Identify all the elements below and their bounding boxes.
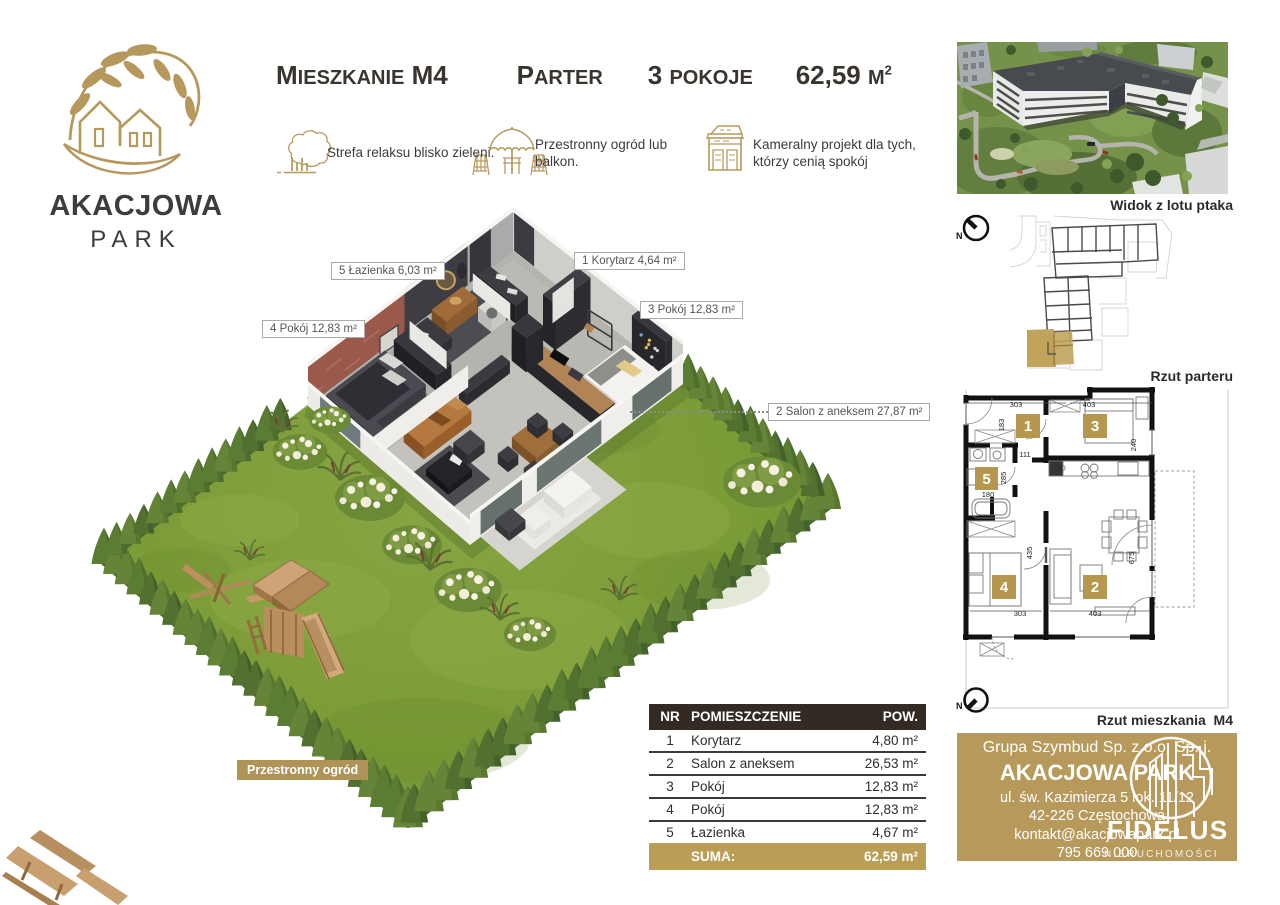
svg-text:435: 435 [1025, 547, 1034, 560]
svg-text:4: 4 [1000, 579, 1009, 596]
svg-text:303: 303 [1010, 400, 1023, 409]
svg-text:285: 285 [999, 472, 1008, 485]
svg-text:403: 403 [1083, 400, 1096, 409]
svg-text:5: 5 [982, 471, 990, 488]
svg-text:180: 180 [982, 490, 995, 499]
svg-text:403: 403 [1089, 609, 1102, 618]
svg-text:183: 183 [997, 419, 1006, 432]
svg-text:1: 1 [1024, 418, 1032, 435]
svg-text:NIERUCHOMOŚCI: NIERUCHOMOŚCI [1104, 847, 1219, 860]
svg-text:FIDELUS: FIDELUS [1107, 815, 1229, 845]
svg-text:2: 2 [1091, 579, 1099, 596]
svg-text:303: 303 [1014, 609, 1027, 618]
svg-text:111: 111 [1019, 450, 1030, 459]
svg-text:3: 3 [1091, 418, 1099, 435]
svg-text:N: N [956, 701, 963, 711]
svg-text:N: N [956, 231, 963, 241]
svg-text:240: 240 [1129, 439, 1138, 452]
svg-text:675: 675 [1127, 552, 1136, 565]
